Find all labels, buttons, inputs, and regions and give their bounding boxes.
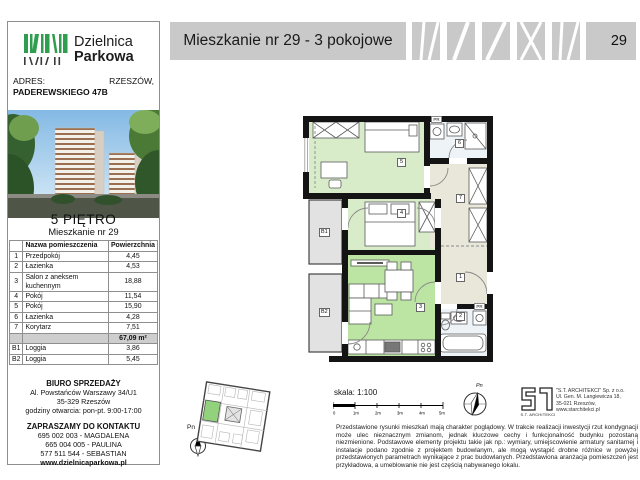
table-header-row: Nazwa pomieszczenia Powierzchnia bbox=[10, 241, 158, 252]
floor-plan: 5 6 7 4 3 1 2 B1 B2 PR PR bbox=[285, 96, 525, 366]
label-room-4: 4 bbox=[397, 209, 406, 218]
label-washer-bottom: PR bbox=[474, 303, 485, 310]
address-block: ADRES: RZESZÓW, PADEREWSKIEGO 47B bbox=[13, 76, 154, 98]
key-plan bbox=[194, 380, 280, 464]
unit-number-badge: 29 bbox=[586, 22, 636, 60]
table-row: B2Loggia5,45 bbox=[10, 354, 158, 365]
svg-text:1m: 1m bbox=[353, 411, 359, 416]
label-loggia-b1: B1 bbox=[319, 228, 330, 237]
svg-text:2m: 2m bbox=[375, 411, 381, 416]
office-hours: godziny otwarcia: pon-pt. 9:00-17:00 bbox=[8, 406, 159, 415]
scale-label: skala: 1:100 bbox=[334, 388, 377, 397]
table-row: 5Pokój15,90 bbox=[10, 302, 158, 313]
address-city: RZESZÓW, bbox=[109, 76, 154, 87]
brand-line2: Parkowa bbox=[74, 50, 134, 65]
label-washer-top: PR bbox=[431, 116, 442, 123]
label-room-6: 6 bbox=[455, 139, 464, 148]
office-address2: 35-329 Rzeszów bbox=[8, 397, 159, 406]
office-address1: Al. Powstańców Warszawy 34/U1 bbox=[8, 388, 159, 397]
address-label: ADRES: bbox=[13, 76, 45, 87]
scale-bar: 0 1m 2m 3m 4m 5m bbox=[333, 402, 451, 416]
label-room-3: 3 bbox=[416, 303, 425, 312]
contact-phone-1: 695 002 003 - MAGDALENA bbox=[8, 431, 159, 440]
contact-phone-2: 665 004 005 - PAULINA bbox=[8, 440, 159, 449]
svg-text:0: 0 bbox=[333, 411, 336, 416]
hatch-tile bbox=[482, 22, 510, 60]
address-street: PADEREWSKIEGO 47B bbox=[13, 87, 154, 98]
sales-office-block: BIURO SPRZEDAŻY Al. Powstańców Warszawy … bbox=[8, 379, 159, 467]
table-row: 3Salon z aneksem kuchennym18,88 bbox=[10, 272, 158, 291]
floor-title: 5 PIĘTRO bbox=[8, 212, 159, 227]
page-title: Mieszkanie nr 29 - 3 pokojowe bbox=[170, 22, 406, 60]
table-total-row: 67,09 m² bbox=[10, 333, 158, 344]
label-room-2: 2 bbox=[456, 312, 465, 321]
key-plan-unit-highlight bbox=[203, 400, 221, 422]
disclaimer-text: Przedstawione rysunki mieszkań mają char… bbox=[336, 424, 638, 470]
table-row: B1Loggia3,86 bbox=[10, 344, 158, 355]
col-area-header: Powierzchnia bbox=[108, 241, 157, 252]
svg-text:4m: 4m bbox=[419, 411, 425, 416]
contact-phone-3: 577 511 544 - SEBASTIAN bbox=[8, 449, 159, 458]
website-text: www.dzielnicaparkowa.pl bbox=[8, 458, 159, 467]
flyer-page: { "header": { "logo_line1": "Dzielnica",… bbox=[0, 0, 640, 480]
tower-left bbox=[55, 128, 104, 200]
brand-line1: Dzielnica bbox=[74, 35, 134, 50]
contact-title: ZAPRASZAMY DO KONTAKTU bbox=[8, 422, 159, 431]
info-panel: Dzielnica Parkowa ADRES: RZESZÓW, PADERE… bbox=[7, 21, 160, 465]
svg-text:5m: 5m bbox=[439, 411, 445, 416]
label-loggia-b2: B2 bbox=[319, 308, 330, 317]
building-rendering bbox=[8, 110, 159, 218]
unit-subtitle: Mieszkanie nr 29 bbox=[8, 227, 159, 237]
table-row: 2Łazienka4,53 bbox=[10, 262, 158, 273]
room-area-table: Nazwa pomieszczenia Powierzchnia 1Przedp… bbox=[9, 240, 158, 365]
architect-line4: www.starchitekci.pl bbox=[556, 407, 640, 413]
svg-text:3m: 3m bbox=[397, 411, 403, 416]
hatch-tile bbox=[412, 22, 440, 60]
office-title: BIURO SPRZEDAŻY bbox=[8, 379, 159, 388]
table-row: 7Korytarz7,51 bbox=[10, 323, 158, 334]
col-name-header: Nazwa pomieszczenia bbox=[23, 241, 109, 252]
hatch-tile bbox=[447, 22, 475, 60]
table-row: 6Łazienka4,28 bbox=[10, 312, 158, 323]
hatch-tile bbox=[517, 22, 545, 60]
label-room-7: 7 bbox=[456, 194, 465, 203]
table-row: 4Pokój11,54 bbox=[10, 291, 158, 302]
label-room-1: 1 bbox=[456, 273, 465, 282]
architect-info-block: "S.T. ARCHITEKCI" Sp. z o.o. Ul. Gen. M.… bbox=[556, 388, 640, 414]
hatch-tile bbox=[552, 22, 580, 60]
compass-icon-right bbox=[461, 388, 489, 418]
table-row: 1Przedpokój4,45 bbox=[10, 251, 158, 262]
brand-bars-icon bbox=[24, 34, 72, 66]
label-room-5: 5 bbox=[397, 158, 406, 167]
total-area: 67,09 m² bbox=[108, 333, 157, 344]
brand-logo: Dzielnica Parkowa bbox=[74, 35, 134, 65]
architect-logo-icon bbox=[520, 386, 556, 412]
